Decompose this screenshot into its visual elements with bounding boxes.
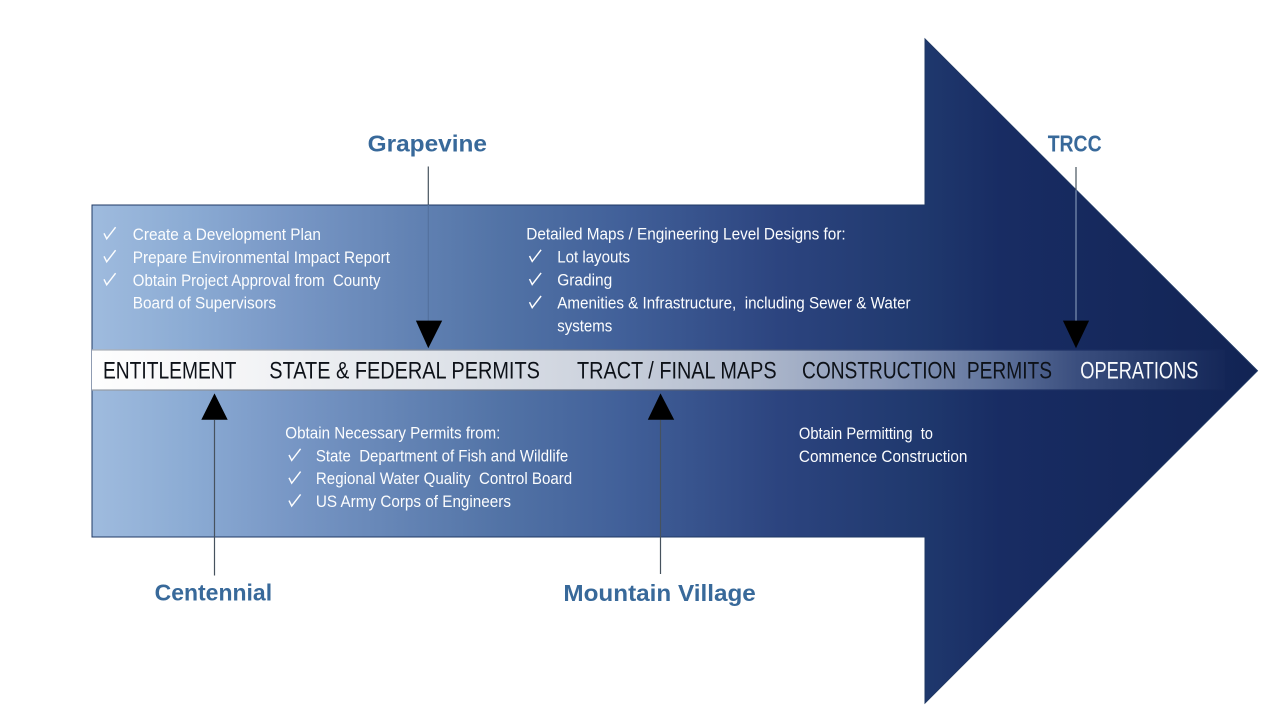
svg-text:Commence Construction: Commence Construction [799,447,968,466]
svg-text:Centennial: Centennial [155,580,273,606]
svg-text:Obtain Project Approval from: Obtain Project Approval from County [133,271,381,290]
svg-text:Grading: Grading [557,271,612,290]
svg-text:Mountain Village: Mountain Village [563,580,755,606]
svg-text:Prepare Environmental Impact R: Prepare Environmental Impact Report [133,248,390,267]
svg-text:systems: systems [557,317,612,336]
svg-text:STATE & FEDERAL PERMITS: STATE & FEDERAL PERMITS [269,358,540,384]
svg-text:Lot layouts: Lot layouts [557,247,630,266]
svg-text:Amenities & Infrastructure, i: Amenities & Infrastructure, including Se… [557,294,911,313]
svg-text:State Department of Fish and: State Department of Fish and Wildlife [316,446,568,465]
svg-text:Regional Water Quality Contro: Regional Water Quality Control Board [316,469,572,488]
svg-text:Create a Development Plan: Create a Development Plan [133,225,321,244]
svg-text:Grapevine: Grapevine [368,131,487,157]
svg-text:Board of Supervisors: Board of Supervisors [133,294,276,313]
svg-text:ENTITLEMENT: ENTITLEMENT [103,358,236,384]
svg-text:Detailed Maps / Engineering Le: Detailed Maps / Engineering Level Design… [526,224,845,243]
svg-text:Obtain Permitting to: Obtain Permitting to [799,424,933,443]
svg-text:OPERATIONS: OPERATIONS [1080,358,1198,384]
svg-text:CONSTRUCTION PERMITS: CONSTRUCTION PERMITS [802,358,1052,384]
svg-text:TRCC: TRCC [1048,131,1102,157]
svg-text:TRACT / FINAL MAPS: TRACT / FINAL MAPS [577,358,777,384]
svg-text:Obtain Necessary Permits from:: Obtain Necessary Permits from: [285,424,500,443]
svg-text:US Army Corps of Engineers: US Army Corps of Engineers [316,492,511,511]
